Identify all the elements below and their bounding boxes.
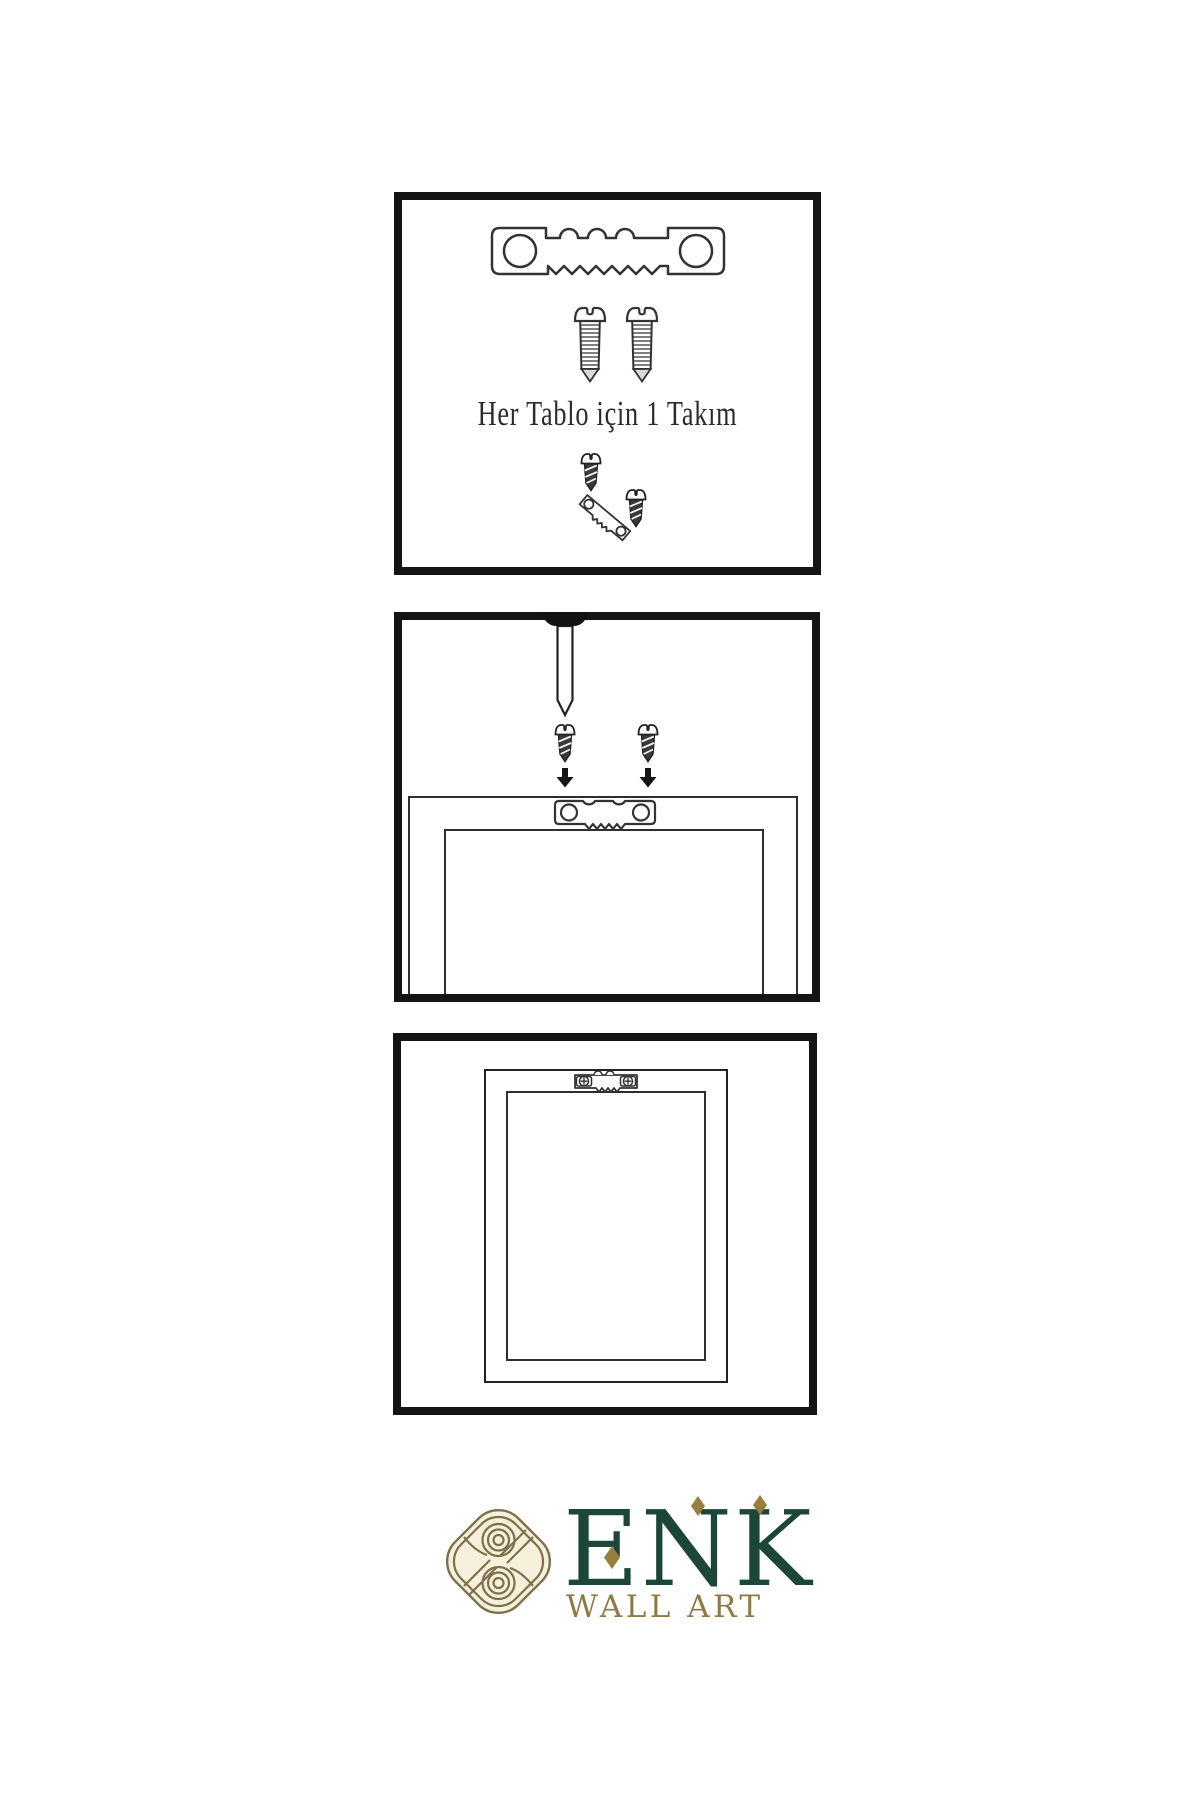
brand-wordmark: ENK — [563, 1497, 814, 1601]
down-arrow-icon — [639, 768, 657, 788]
step-panel-kit: Her Tablo için 1 Takım — [394, 192, 821, 575]
screw-into-hanger-icon — [578, 451, 652, 551]
down-arrow-icon — [556, 768, 574, 788]
brand-tagline: WALL ART — [566, 1592, 764, 1623]
frame-back-inner — [506, 1091, 706, 1361]
step-panel-mount — [394, 612, 820, 1002]
enk-knot-icon — [437, 1493, 560, 1630]
sawtooth-hanger-icon — [572, 1071, 640, 1093]
sawtooth-hanger-icon — [553, 799, 657, 831]
tilted-hanger-icon — [578, 495, 630, 543]
kit-caption: Her Tablo için 1 Takım — [453, 394, 761, 434]
instruction-sheet: Her Tablo için 1 Takım — [0, 0, 1200, 1800]
frame-back-inner — [444, 829, 764, 994]
screw-icon — [572, 305, 608, 383]
screw-icon — [636, 722, 660, 764]
nail-icon — [541, 612, 589, 718]
screw-icon — [553, 722, 577, 764]
screw-icon — [624, 305, 660, 383]
step-panel-hang — [393, 1033, 817, 1415]
sawtooth-hanger-icon — [490, 222, 726, 280]
